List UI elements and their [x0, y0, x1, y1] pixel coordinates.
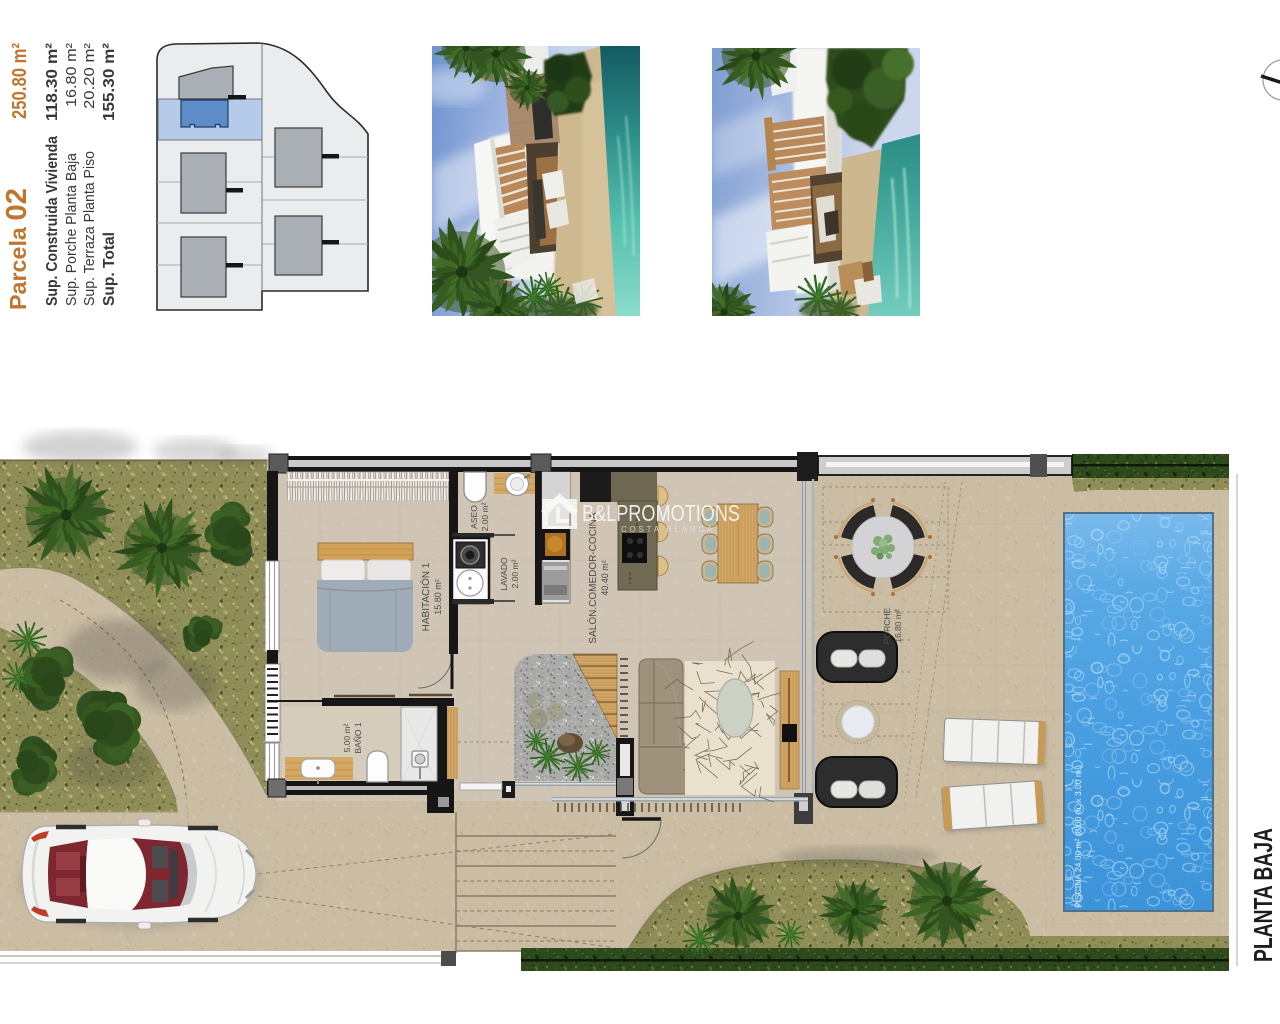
svg-text:40.40 m²: 40.40 m²	[600, 560, 610, 596]
svg-text:ASEO: ASEO	[469, 505, 479, 529]
svg-text:155.30 m²: 155.30 m²	[101, 43, 118, 121]
svg-text:HABITACIÓN 1: HABITACIÓN 1	[419, 562, 432, 631]
svg-text:2.00 m²: 2.00 m²	[510, 559, 520, 588]
svg-text:SALÓN.COMEDOR-COCINA: SALÓN.COMEDOR-COCINA	[586, 512, 599, 643]
svg-text:2.00 m²: 2.00 m²	[480, 502, 490, 531]
svg-text:Sup. Porche Planta Baja: Sup. Porche Planta Baja	[64, 152, 80, 306]
svg-text:250.80 m²: 250.80 m²	[9, 43, 31, 119]
svg-text:B&LPROMOTIONS: B&LPROMOTIONS	[582, 500, 740, 526]
svg-text:16.80 m²: 16.80 m²	[64, 43, 80, 107]
svg-text:LAVADO: LAVADO	[499, 557, 509, 591]
svg-text:16.80 m²: 16.80 m²	[893, 609, 903, 643]
svg-text:15.80 m²: 15.80 m²	[433, 579, 443, 615]
svg-text:20.20 m²: 20.20 m²	[82, 43, 98, 109]
svg-text:118.30 m²: 118.30 m²	[44, 43, 61, 121]
svg-text:BAÑO 1: BAÑO 1	[353, 722, 363, 753]
svg-text:Sup. Construida Vivienda: Sup. Construida Vivienda	[44, 136, 61, 306]
svg-text:PISCINA 24.00 m² (8.00 m. x 3: PISCINA 24.00 m² (8.00 m. x 3.00 m.)	[1073, 765, 1083, 908]
svg-text:Sup. Total: Sup. Total	[101, 232, 118, 306]
svg-text:COSTA BLANCA: COSTA BLANCA	[621, 524, 715, 534]
svg-text:Parcela 02: Parcela 02	[1, 188, 33, 310]
svg-text:Sup. Terraza Planta Piso: Sup. Terraza Planta Piso	[82, 151, 98, 306]
svg-text:5.00 m²: 5.00 m²	[342, 723, 352, 752]
svg-text:PORCHE: PORCHE	[882, 607, 892, 644]
svg-text:PLANTA BAJA: PLANTA BAJA	[1248, 828, 1278, 962]
